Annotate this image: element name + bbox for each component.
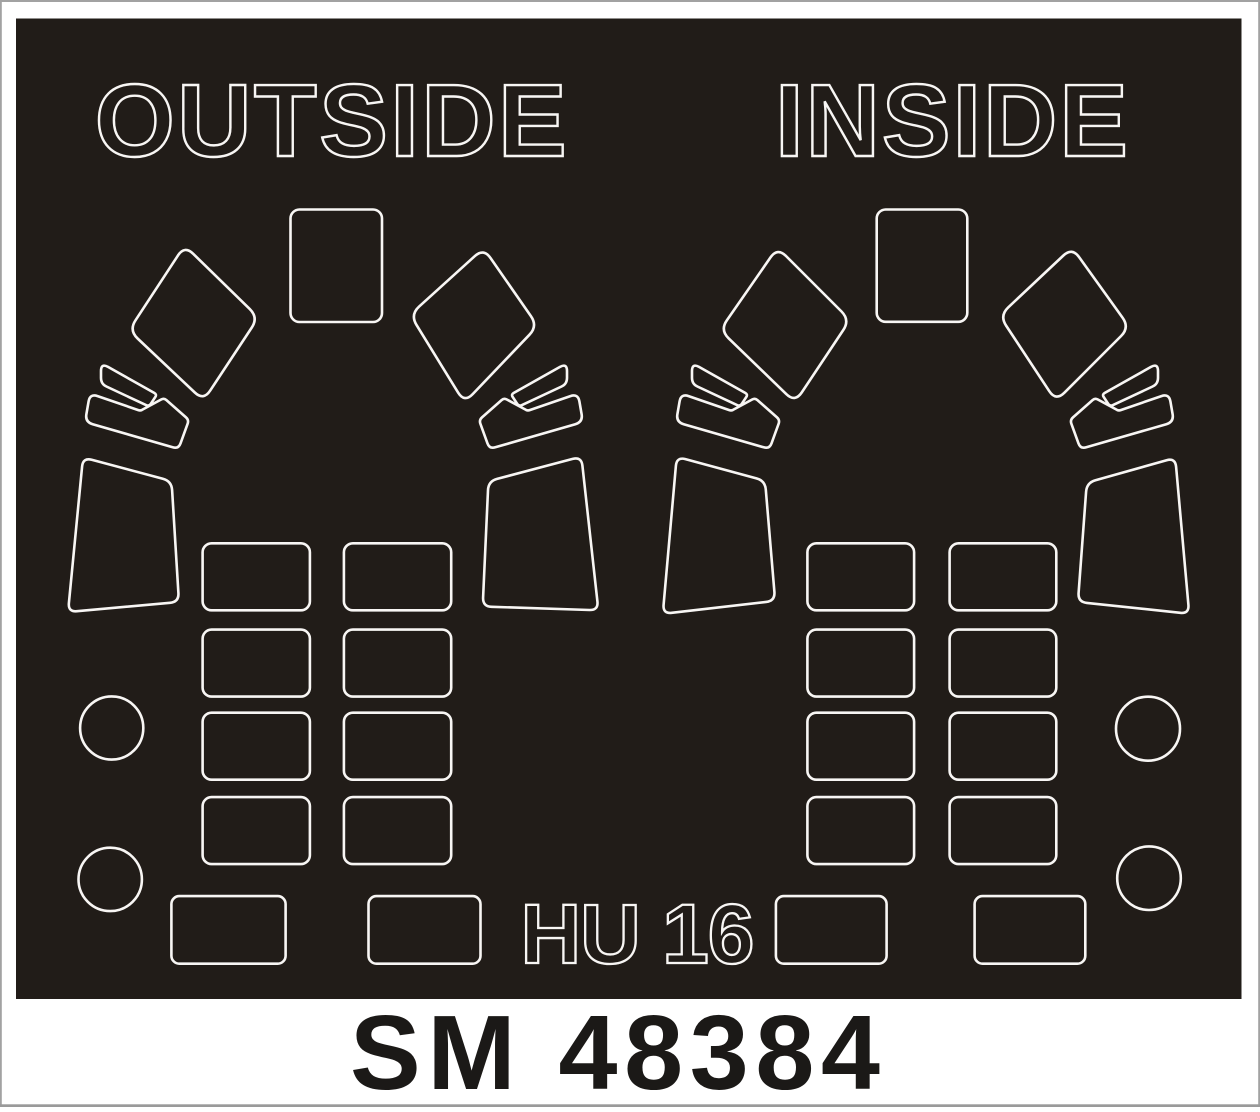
svg-text:SM 48384: SM 48384 xyxy=(350,994,880,1107)
svg-text:INSIDE: INSIDE xyxy=(775,63,1128,178)
svg-text:HU 16: HU 16 xyxy=(521,887,755,981)
